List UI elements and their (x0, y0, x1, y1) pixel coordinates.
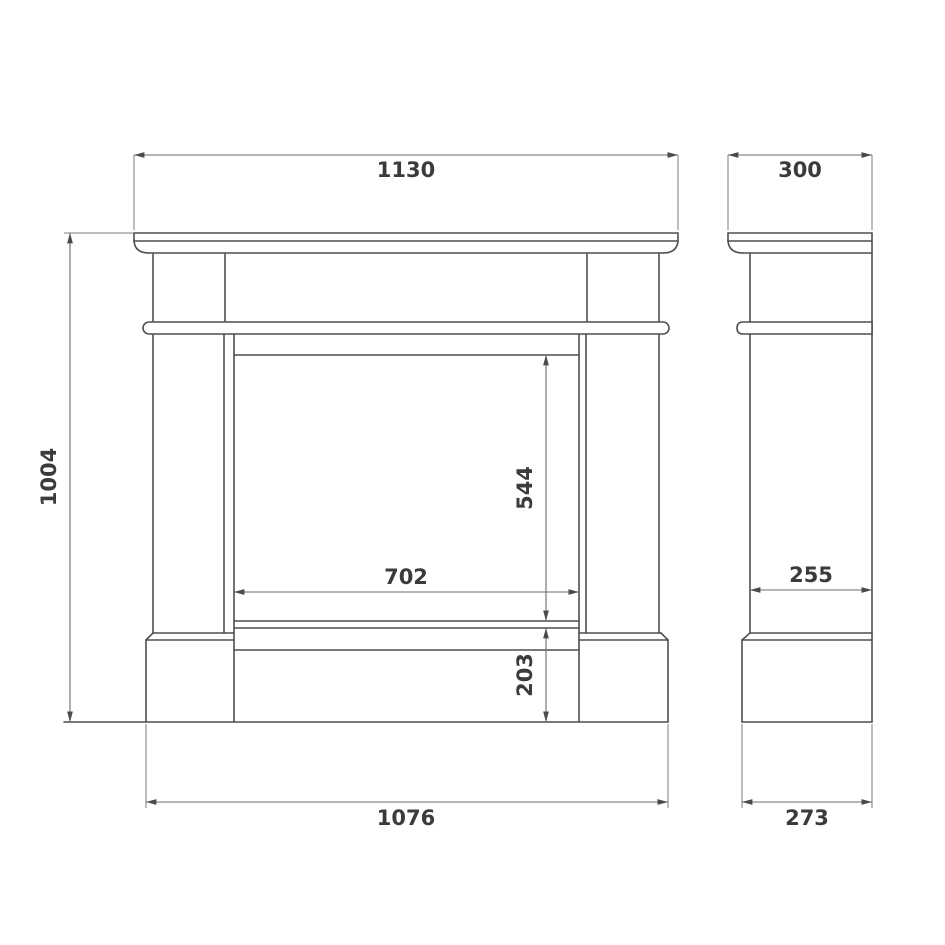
front-view (64, 233, 678, 722)
dim-shelf-width: 1130 (134, 155, 678, 230)
dim-base-width: 1076 (146, 724, 668, 830)
dim-opening-height: 544 (513, 355, 546, 621)
drawing-canvas: 1130 300 1004 544 702 255 (0, 0, 945, 945)
dim-overall-height-label: 1004 (37, 448, 61, 506)
dim-column-depth: 255 (750, 563, 872, 590)
front-shelf (134, 233, 678, 253)
dim-shelf-depth-label: 300 (778, 158, 822, 182)
side-plinth-chamfer (742, 633, 750, 640)
side-shelf-molding-curve (728, 241, 743, 253)
dim-opening-width-label: 702 (384, 565, 428, 589)
dim-base-width-label: 1076 (377, 806, 435, 830)
front-shelf-right-molding-curve (663, 241, 678, 253)
side-view (728, 233, 872, 722)
front-pilasters-upper (153, 253, 659, 322)
dim-base-depth: 273 (742, 724, 872, 830)
mantel-dimension-drawing: 1130 300 1004 544 702 255 (0, 0, 945, 945)
dim-column-depth-label: 255 (789, 563, 833, 587)
front-plinth-left-chamfer (146, 633, 153, 640)
dim-hearth-height: 203 (513, 628, 546, 722)
front-pilasters-lower (153, 334, 659, 722)
front-shelf-left-molding-curve (134, 241, 149, 253)
dim-hearth-height-label: 203 (513, 653, 537, 697)
dim-shelf-depth: 300 (728, 155, 872, 230)
dim-opening-height-label: 544 (513, 466, 537, 510)
dim-overall-height: 1004 (37, 233, 133, 722)
side-plinth (742, 633, 872, 722)
front-plinths (64, 633, 668, 722)
dim-base-depth-label: 273 (785, 806, 829, 830)
front-plinth-right-chamfer (661, 633, 668, 640)
dimensions: 1130 300 1004 544 702 255 (37, 155, 872, 830)
dim-shelf-width-label: 1130 (377, 158, 435, 182)
side-shelf (728, 233, 872, 253)
front-torus-molding (143, 322, 669, 334)
dim-opening-width: 702 (234, 565, 579, 592)
side-torus-molding (737, 322, 872, 334)
